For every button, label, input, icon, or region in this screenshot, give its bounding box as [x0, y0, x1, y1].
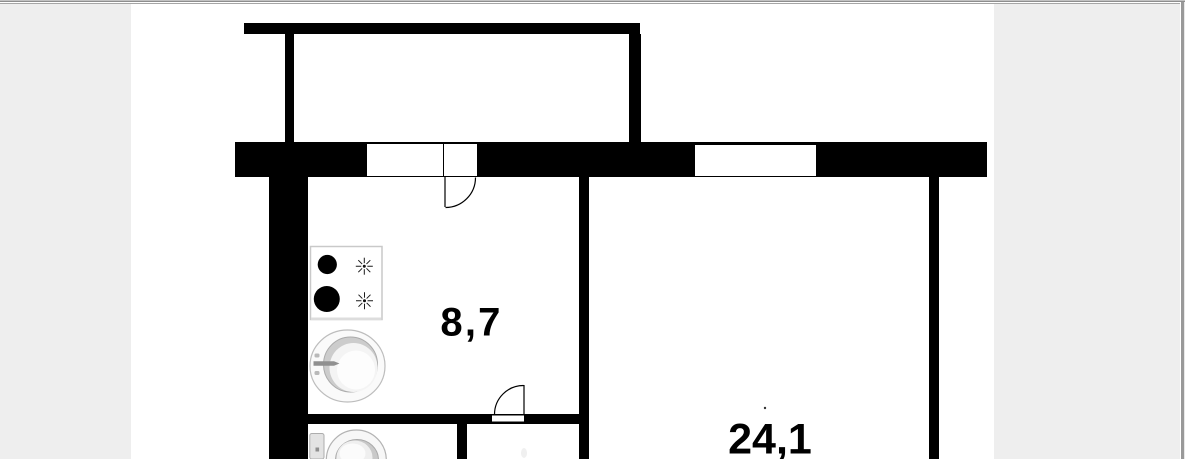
svg-text:8,7: 8,7: [440, 301, 502, 345]
svg-text:24,1: 24,1: [728, 416, 812, 459]
